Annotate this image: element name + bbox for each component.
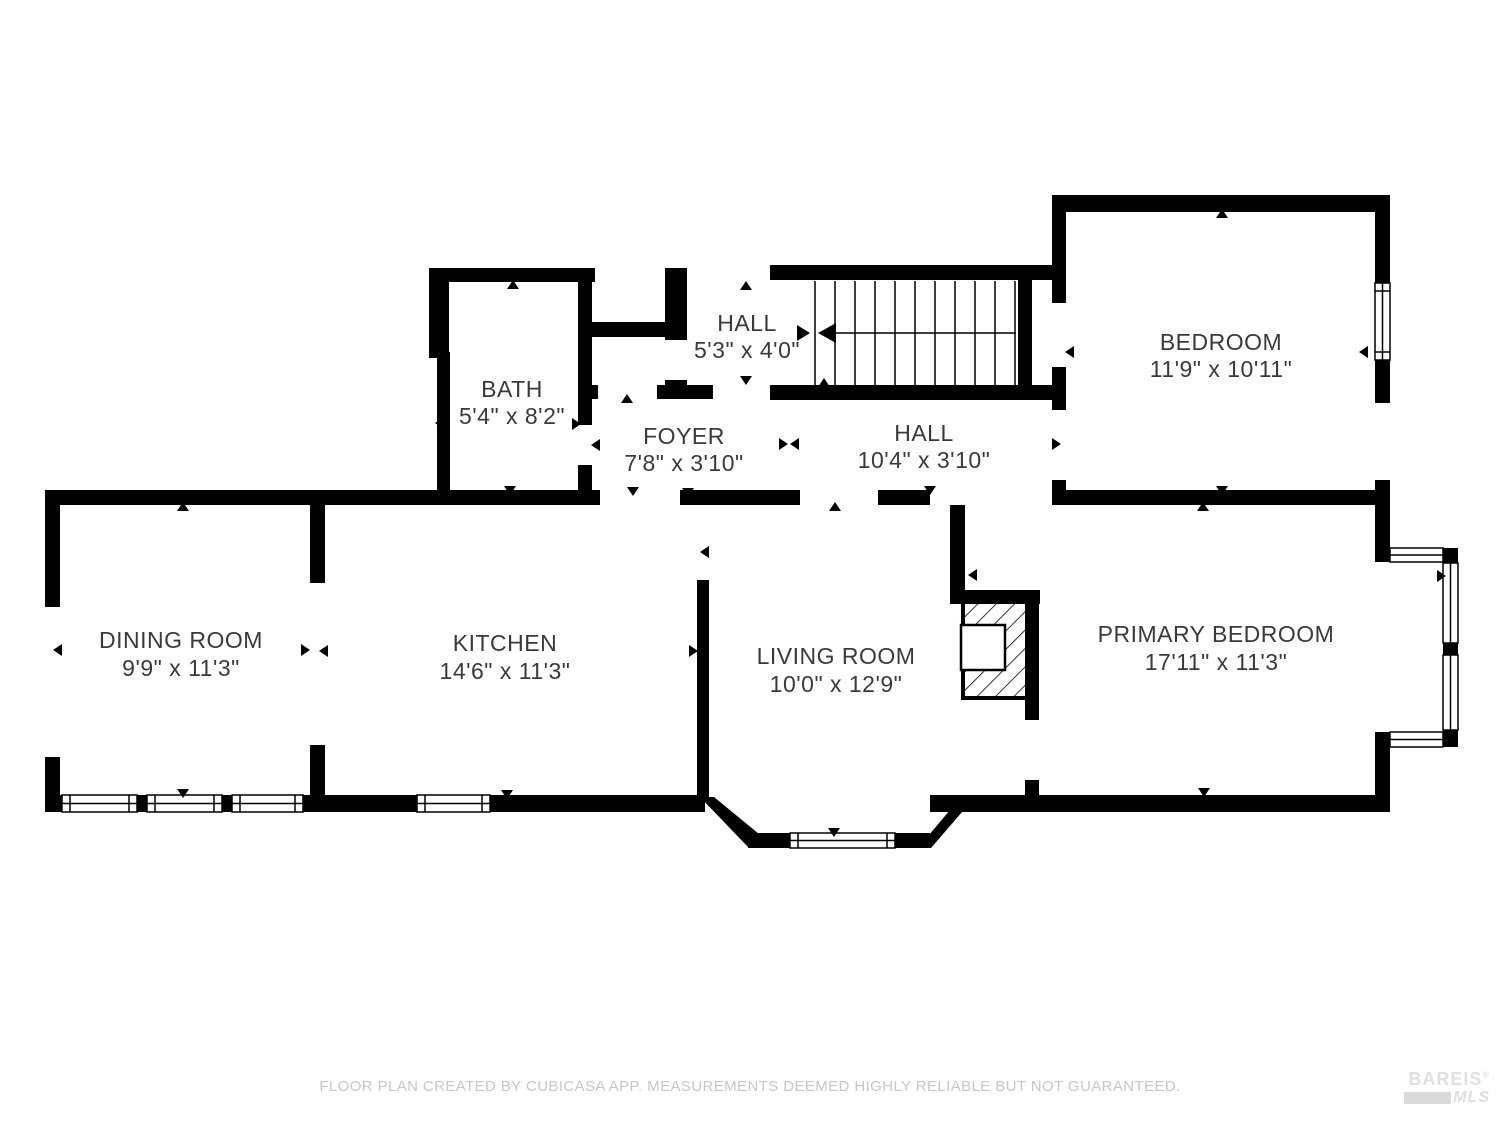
door-marker: [700, 546, 709, 558]
watermark-sub-row: MLS: [1404, 1089, 1490, 1107]
window: [790, 833, 895, 848]
window: [232, 795, 303, 812]
door-marker: [689, 645, 698, 657]
door-marker: [740, 376, 752, 385]
room-dims-label: 10'0" x 12'9": [770, 671, 903, 697]
door-marker: [818, 378, 830, 387]
door-marker: [740, 281, 752, 290]
window: [1390, 732, 1443, 747]
staircase: [797, 281, 1016, 385]
registered-mark-icon: ®: [1482, 1070, 1490, 1080]
door-marker: [591, 439, 600, 451]
window: [417, 795, 490, 812]
room-name-label: DINING ROOM: [99, 627, 263, 653]
room-name-label: KITCHEN: [453, 630, 557, 656]
room-name-label: BEDROOM: [1160, 329, 1282, 355]
room-dims-label: 5'3" x 4'0": [694, 337, 800, 363]
watermark-bar: [1404, 1092, 1451, 1104]
room-dims-label: 14'6" x 11'3": [440, 658, 571, 684]
window: [1390, 548, 1443, 562]
mls-watermark: BAREIS® MLS: [1404, 1066, 1490, 1107]
door-marker: [53, 644, 62, 656]
window: [1443, 563, 1458, 643]
window: [1375, 283, 1390, 360]
room-name-label: PRIMARY BEDROOM: [1098, 621, 1335, 647]
watermark-brand-text: BAREIS: [1408, 1069, 1482, 1089]
room-name-label: HALL: [894, 420, 954, 446]
walls: [45, 195, 1458, 848]
door-marker: [779, 438, 788, 450]
door-marker: [1065, 346, 1074, 358]
fireplace: [961, 597, 1027, 698]
window: [62, 795, 137, 812]
room-name-label: HALL: [717, 310, 777, 336]
floor-plan-page: HALL 5'3" x 4'0" BATH 5'4" x 8'2" FOYER …: [0, 0, 1500, 1125]
room-dims-label: 9'9" x 11'3": [122, 655, 240, 681]
floor-plan-canvas: HALL 5'3" x 4'0" BATH 5'4" x 8'2" FOYER …: [0, 0, 1500, 1125]
room-dims-label: 11'9" x 10'11": [1150, 356, 1293, 382]
room-dims-label: 5'4" x 8'2": [459, 403, 565, 429]
door-marker: [1359, 346, 1368, 358]
stair-direction-arrow: [818, 323, 836, 343]
watermark-brand: BAREIS®: [1404, 1066, 1490, 1088]
door-marker: [790, 438, 799, 450]
door-marker: [301, 644, 310, 656]
room-name-label: LIVING ROOM: [757, 643, 916, 669]
room-name-label: FOYER: [643, 423, 725, 449]
door-marker: [829, 502, 841, 511]
room-dims-label: 7'8" x 3'10": [624, 450, 743, 476]
fireplace-firebox: [961, 625, 1005, 670]
footer-disclaimer: FLOOR PLAN CREATED BY CUBICASA APP. MEAS…: [0, 1078, 1500, 1095]
door-marker: [968, 569, 977, 581]
window: [1443, 655, 1458, 730]
door-marker: [1052, 438, 1061, 450]
door-marker: [627, 487, 639, 496]
watermark-sub-text: MLS: [1453, 1089, 1490, 1107]
room-dims-label: 17'11" x 11'3": [1145, 649, 1288, 675]
room-name-label: BATH: [481, 376, 543, 402]
door-marker: [621, 394, 633, 403]
door-markers: [53, 209, 1446, 837]
room-dims-label: 10'4" x 3'10": [858, 447, 991, 473]
window: [147, 795, 222, 812]
door-marker: [319, 645, 328, 657]
